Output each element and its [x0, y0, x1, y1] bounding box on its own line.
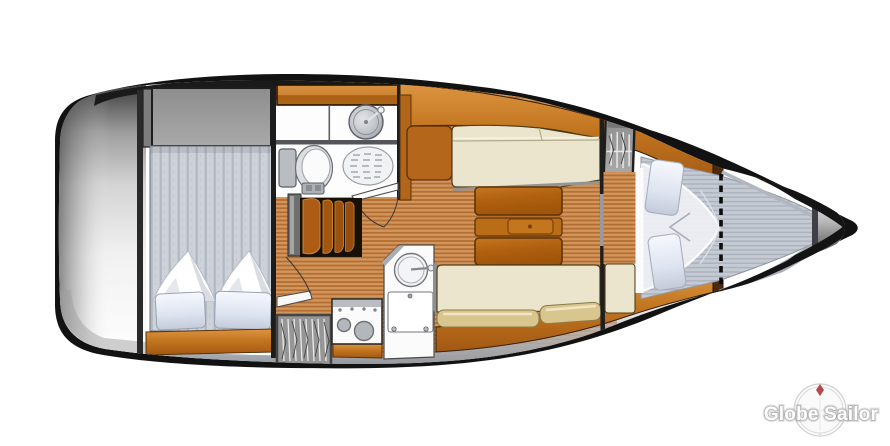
svg-text:Globe Sailor: Globe Sailor [764, 404, 879, 425]
